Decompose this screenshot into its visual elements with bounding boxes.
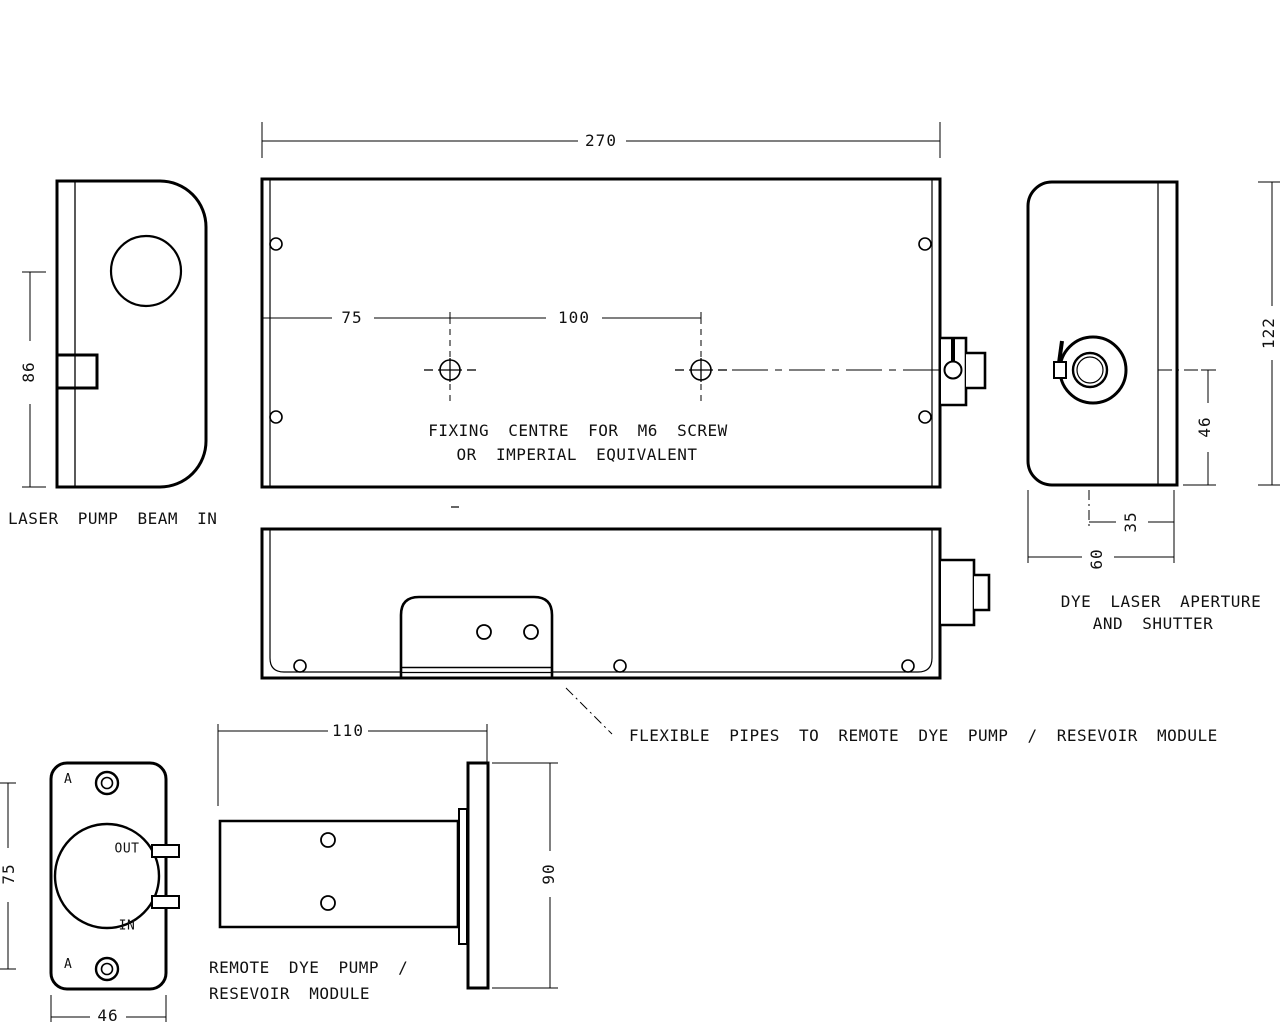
label-remote-pump-line1: REMOTE DYE PUMP /	[209, 960, 408, 976]
flexible-pipes-leader-line	[566, 688, 612, 734]
label-remote-pump-line2: RESEVOIR MODULE	[209, 986, 370, 1002]
dim-90: 90	[541, 863, 557, 884]
label-in-port: IN	[119, 920, 136, 933]
in-port-stub	[152, 896, 179, 908]
pump-flange	[468, 763, 488, 988]
main-shutter-knob	[941, 338, 985, 405]
label-dye-aperture-line2: AND SHUTTER	[1093, 616, 1213, 632]
dim-35: 35	[1123, 511, 1139, 532]
view-laser-pump-side	[22, 181, 206, 487]
out-port-stub	[152, 845, 179, 857]
note-fixing-centre-line2: OR IMPERIAL EQUIVALENT	[457, 447, 698, 463]
end-body-outline	[1028, 182, 1177, 485]
pipe-bracket	[401, 597, 552, 678]
dim-270: 270	[585, 133, 617, 149]
dim-60: 60	[1089, 548, 1105, 569]
note-flexible-pipes: FLEXIBLE PIPES TO REMOTE DYE PUMP / RESE…	[629, 728, 1218, 744]
dim-75-pump: 75	[1, 863, 17, 884]
label-laser-pump-beam-in: LASER PUMP BEAM IN	[8, 511, 217, 527]
label-out-port: OUT	[115, 843, 140, 856]
dim-46-pump: 46	[97, 1008, 118, 1024]
view-end-aperture	[1028, 182, 1280, 563]
view-pump-front	[0, 763, 179, 1022]
engineering-drawing: LASER PUMP BEAM IN 86 270 75 100 FIXING …	[0, 0, 1280, 1024]
pump-body	[220, 821, 458, 927]
pump-gasket-strip	[459, 809, 467, 944]
datum-a-top: A	[64, 773, 72, 786]
bottom-body-outline	[262, 529, 940, 678]
pump-side-body-outline	[57, 181, 206, 487]
pump-front-plate	[51, 763, 166, 989]
bottom-shutter-knob	[941, 560, 989, 625]
main-body-outline	[262, 179, 940, 487]
view-main-bottom	[262, 529, 989, 734]
dim-110: 110	[332, 723, 364, 739]
dim-86: 86	[21, 361, 37, 382]
dim-75: 75	[341, 310, 362, 326]
datum-a-bottom: A	[64, 958, 72, 971]
dim-46-end: 46	[1197, 416, 1213, 437]
dim-100: 100	[558, 310, 590, 326]
dim-122: 122	[1261, 317, 1277, 349]
note-fixing-centre-line1: FIXING CENTRE FOR M6 SCREW	[428, 423, 727, 439]
view-pump-side-profile	[218, 724, 558, 988]
label-dye-aperture-line1: DYE LASER APERTURE	[1061, 594, 1261, 610]
